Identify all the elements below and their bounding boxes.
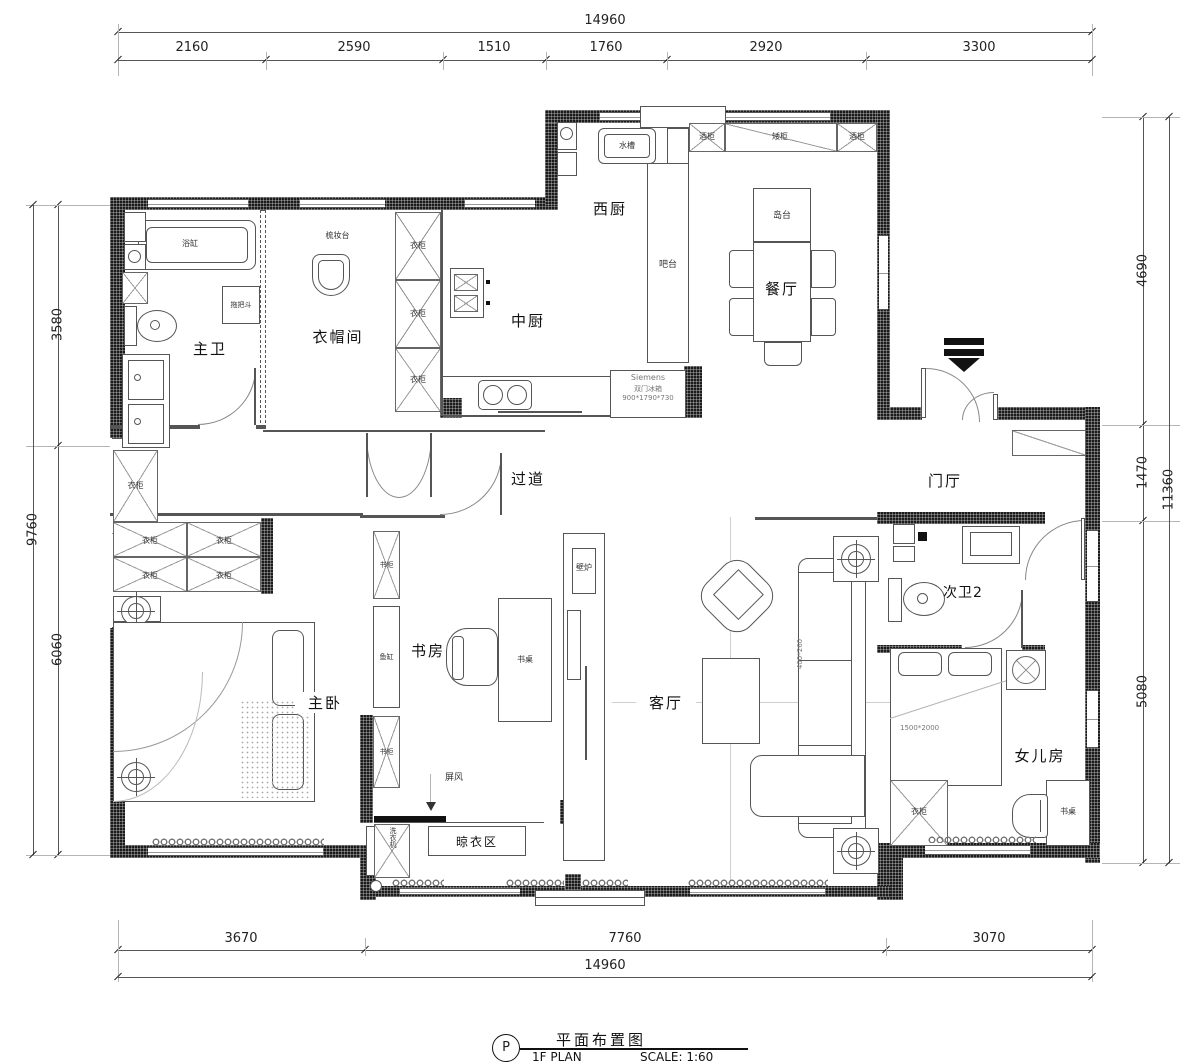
fridge-brand: Siemens [610,373,686,382]
wall-segment [261,518,273,594]
dim-top-6: 3300 [939,40,1019,55]
wall-thin [755,517,877,520]
wall-partition [260,210,266,428]
stove-knob [486,280,490,284]
window [925,845,1030,855]
door-leaf [1021,590,1023,648]
door-leaf [254,368,256,425]
fish-tank-label: 鱼缸 [373,652,400,662]
dim-top-2: 2590 [314,40,394,55]
door-leaf [1081,518,1085,580]
wall-segment [565,874,581,890]
lamp-symbol [1012,656,1040,684]
toilet-drain [150,320,160,330]
curtain [928,831,1036,843]
curtain [582,874,628,886]
dim-ext [118,920,119,982]
room-label-master-bedroom: 主卧 [295,692,355,713]
toilet-tank [888,578,902,622]
window [148,847,323,856]
room-label-daughter: 女儿房 [1000,745,1080,766]
door-arc [440,453,502,515]
dim-line [118,977,1092,978]
title-scale: SCALE: 1:60 [640,1050,750,1063]
burner [454,274,478,291]
sink-bowl [483,385,503,405]
fireplace-label: 壁炉 [565,562,603,573]
wardrobe-label: 衣柜 [187,570,261,581]
dim-line [118,32,1092,33]
door-arc [198,368,256,425]
dim-bottom-2: 7760 [585,931,665,946]
dim-top-4: 1760 [566,40,646,55]
room-label-foyer: 门厅 [915,470,975,491]
fridge-size: 900*1790*730 [610,394,686,402]
fixture [122,272,148,304]
dim-ext [365,938,366,956]
room-label-corridor: 过道 [498,468,558,489]
dim-left-total: 9760 [26,490,41,570]
fireplace-cabinet [567,610,581,680]
coffee-table [702,658,760,744]
dim-ext [443,52,444,70]
window [300,199,385,208]
entry-symbol-bar [944,349,984,356]
dim-ext [26,205,110,206]
wall-segment [890,407,922,420]
wardrobe-label: 衣柜 [187,535,261,546]
dim-top-3: 1510 [454,40,534,55]
dim-ext [118,24,119,76]
lamp-symbol [121,762,151,792]
dim-right-3: 5080 [1136,652,1151,732]
accent-chair [693,552,781,640]
dresser-label: 梳妆台 [315,230,360,241]
wine-cabinet-label: 酒柜 [837,131,877,142]
door-leaf [500,453,502,515]
title-mark: P [492,1040,520,1055]
room-label-drying: 晾衣区 [428,833,526,850]
dim-ext [546,52,547,70]
wardrobe-label: 衣柜 [113,570,187,581]
shower-fixture [893,546,915,562]
island-label: 岛台 [753,208,811,221]
dim-ext [1092,24,1093,76]
chair [811,250,836,288]
dim-right-total: 11360 [1162,450,1177,530]
wall-segment [684,366,702,418]
window-sill [535,890,645,906]
chair [729,298,754,336]
room-label-master-bath: 主卫 [180,338,240,359]
column [667,128,689,166]
room-label-west-kitchen: 西厨 [575,198,645,219]
window [400,888,520,895]
shower-head [918,532,927,541]
fixture [124,212,146,242]
wardrobe-label: 衣柜 [395,308,441,319]
sink-label: 水槽 [598,140,656,151]
door-arc [366,434,399,498]
sofa-chaise [750,755,865,817]
ceiling-fixture-symbol [841,544,871,574]
dim-bottom-1: 3670 [201,931,281,946]
curtain [152,833,324,845]
window [148,199,248,208]
entry-symbol-bar [944,338,984,345]
vanity-sink [128,404,164,444]
dim-ext [1092,920,1093,982]
door-arc [1025,520,1085,580]
dim-ext [886,938,887,956]
toilet-drain [917,593,928,604]
bar-label: 吧台 [647,257,689,270]
stove-knob [486,301,490,305]
dim-top-1: 2160 [152,40,232,55]
entry-arrow-icon [948,358,980,372]
vanity-sink [970,532,1012,556]
wall-thin [360,515,445,518]
ceiling-fixture-symbol [841,836,871,866]
window [465,199,535,208]
low-cabinet-label: 矮柜 [755,131,805,142]
dim-ext [667,52,668,70]
wine-cabinet-label: 酒柜 [689,131,725,142]
pillow [898,652,942,676]
washer-label: 洗衣机 [386,827,398,848]
title-cn: 平面布置图 [556,1029,686,1050]
sliding-door [498,411,582,413]
room-label-study: 书房 [398,640,458,661]
leader-arrow-icon [426,802,436,811]
desk-label: 书桌 [500,654,550,665]
screen-label: 屏风 [437,770,471,783]
window [879,235,888,310]
wall-thin [256,425,266,429]
door-leaf [430,433,432,497]
dim-top-total: 14960 [555,13,655,28]
door-leaf [366,433,368,497]
dim-ext [26,446,110,447]
room-label-living: 客厅 [636,692,696,713]
wardrobe-label: 衣柜 [113,480,158,491]
burner [454,295,478,312]
fixture-knob [128,250,141,263]
dim-top-5: 2920 [726,40,806,55]
window [1087,530,1098,602]
sofa-seam [798,745,852,746]
curtain [688,874,828,886]
door-arc [399,434,432,498]
appliance-knob [560,127,573,140]
tv-panel [585,666,587,760]
bookcase-label: 书柜 [373,747,400,757]
sliding-door [505,415,589,417]
dim-ext [866,52,867,70]
room-label-bath2: 次卫2 [928,582,998,602]
room-label-cloakroom: 衣帽间 [298,326,378,347]
leader-line [430,774,431,802]
dim-right-2: 1470 [1136,433,1151,513]
bed-size-label: 1500*2000 [900,724,980,732]
chair-back [1040,800,1041,832]
dim-bottom-3: 3070 [949,931,1029,946]
wall-segment [360,715,373,823]
sofa-size-label: 400*260 [796,626,804,682]
window-sill-line [535,897,645,898]
chair [729,250,754,288]
title-en: 1F PLAN [532,1050,622,1063]
wall-thin [263,430,545,432]
dim-left-1: 3580 [51,285,66,365]
window [1087,690,1098,748]
chair [764,342,802,366]
dim-left-2: 6060 [51,610,66,690]
curtain [392,874,444,886]
dim-bottom-total: 14960 [565,958,645,973]
wardrobe-label: 衣柜 [890,806,948,817]
wardrobe-label: 衣柜 [395,374,441,385]
wardrobe-label: 衣柜 [395,240,441,251]
sofa-seam [798,660,852,661]
vanity-sink [128,360,164,400]
bathtub-label: 浴缸 [160,238,220,249]
dim-line [118,950,1092,951]
bookcase-label: 书柜 [373,560,400,570]
drain [370,880,382,892]
screen-line [374,822,544,823]
wall-segment [877,512,1045,524]
room-label-chinese-kitchen: 中厨 [498,310,558,331]
mop-sink-label: 拖把斗 [222,300,260,310]
shower-fixture [893,524,915,544]
wall-segment [995,407,1090,420]
dim-right-1: 4690 [1136,231,1151,311]
stool-inner [318,260,344,290]
vanity-drain [134,418,141,425]
shoe-cabinet [1012,430,1086,456]
window [690,888,825,895]
vanity-drain [134,374,141,381]
fridge-type: 双门冰箱 [610,384,686,394]
accent-chair-cushion [713,569,764,620]
curtain [506,874,564,886]
appliance [557,152,577,176]
chair [811,298,836,336]
wardrobe-label: 衣柜 [113,535,187,546]
dim-ext [266,52,267,70]
wall-thin [441,210,443,416]
toilet-tank [124,306,137,346]
rug [240,700,310,798]
sink-bowl [507,385,527,405]
desk-label: 书桌 [1046,806,1090,817]
room-label-dining: 餐厅 [752,278,812,299]
floor-plan: 14960 2160 2590 1510 1760 2920 3300 3670… [0,0,1200,1063]
pillow [948,652,992,676]
dim-ext [26,855,110,856]
